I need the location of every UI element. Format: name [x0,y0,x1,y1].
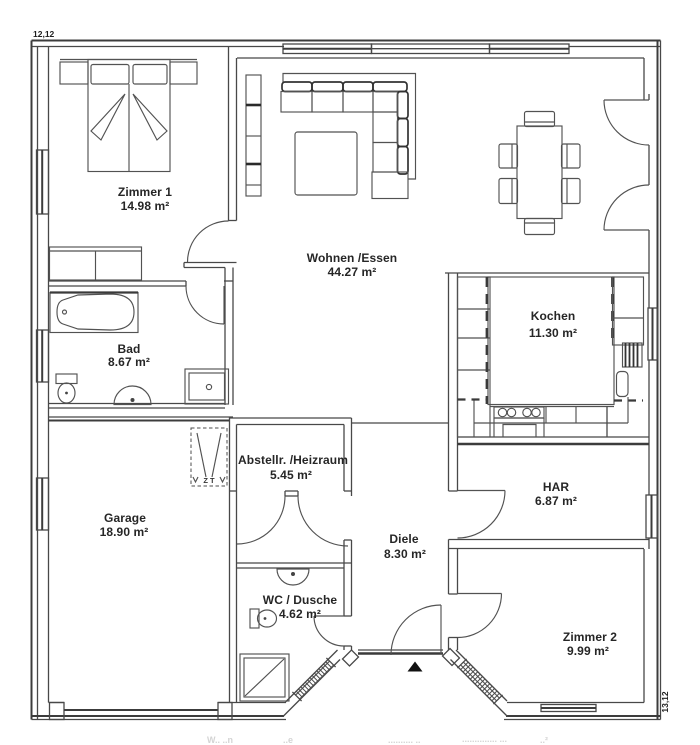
svg-text:Bad: Bad [118,342,141,356]
svg-text:.......... ..: .......... .. [388,735,421,745]
svg-text:9.99 m²: 9.99 m² [567,644,609,658]
svg-text:8.30 m²: 8.30 m² [384,547,426,561]
svg-text:4.62 m²: 4.62 m² [279,607,321,621]
svg-text:Zimmer 1: Zimmer 1 [118,185,172,199]
svg-text:Kochen: Kochen [531,309,576,323]
svg-text:18.90 m²: 18.90 m² [100,525,149,539]
svg-text:44.27 m²: 44.27 m² [328,265,377,279]
svg-text:5.45 m²: 5.45 m² [270,468,312,482]
svg-text:6.87 m²: 6.87 m² [535,494,577,508]
svg-text:Garage: Garage [104,511,146,525]
svg-text:8.67 m²: 8.67 m² [108,355,150,369]
svg-text:Wohnen /Essen: Wohnen /Essen [307,251,397,265]
svg-text:.............. ...: .............. ... [462,734,507,744]
svg-text:..e: ..e [283,735,293,745]
svg-text:12,12: 12,12 [33,29,55,39]
svg-text:Zimmer 2: Zimmer 2 [563,630,617,644]
svg-text:HAR: HAR [543,480,570,494]
svg-text:..²: ..² [540,735,548,745]
svg-text:WC / Dusche: WC / Dusche [263,593,338,607]
svg-text:13,12: 13,12 [660,691,670,713]
svg-text:Z T: Z T [203,476,215,485]
svg-text:14.98 m²: 14.98 m² [121,199,170,213]
svg-text:Diele: Diele [389,532,418,546]
svg-text:Abstellr. /Heizraum: Abstellr. /Heizraum [238,453,348,467]
svg-text:W.. ..n: W.. ..n [207,735,233,745]
svg-text:11.30 m²: 11.30 m² [529,326,577,340]
